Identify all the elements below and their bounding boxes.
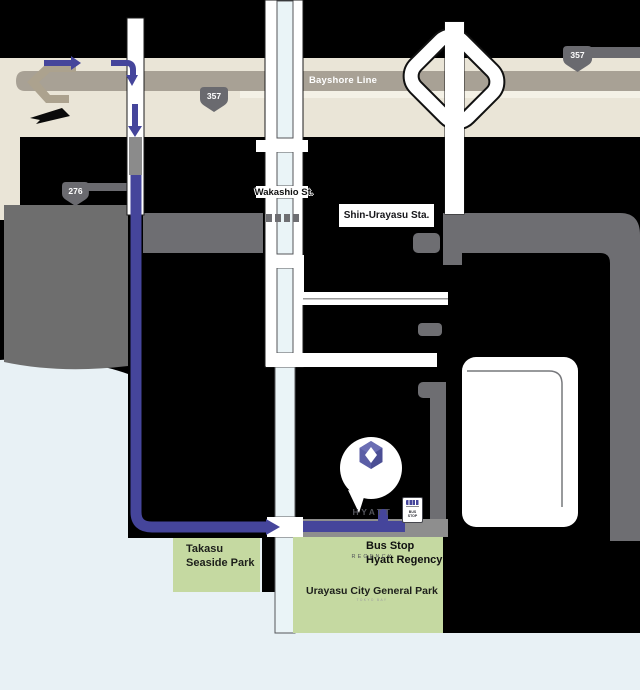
- route-357-number-west: 357: [200, 91, 228, 101]
- city-block: [4, 205, 128, 369]
- takasu-park-label: TakasuSeaside Park: [186, 543, 255, 570]
- hyatt-regency-wordmark: HYATT REGENCY TOKYO BAY: [341, 471, 402, 638]
- wakashio-street-label: Wakashio St.: [244, 187, 324, 198]
- bus-icon: [406, 500, 419, 505]
- bayshore-line-label: Bayshore Line: [309, 75, 377, 86]
- bus-stop-sign: BUSSTOP: [402, 497, 423, 523]
- route-357-number-east: 357: [563, 50, 592, 60]
- bus-wheels-icon: [406, 506, 419, 509]
- station-name: Shin-Urayasu Sta.: [344, 210, 430, 221]
- route-276-number: 276: [62, 186, 89, 196]
- shin-urayasu-station-label: Shin-Urayasu Sta.: [339, 204, 434, 227]
- hotel-loop-road: [462, 357, 578, 527]
- access-map: Bayshore Line 357 357 276 Wakashio St. S…: [0, 0, 640, 690]
